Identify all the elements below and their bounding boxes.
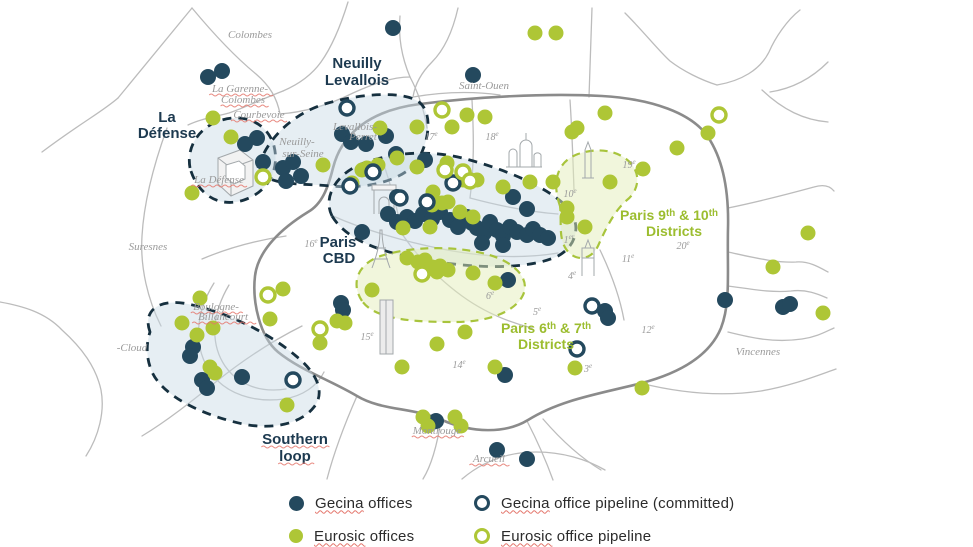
legend-item-gecina-offices: Gecina offices [289, 494, 413, 512]
eurosic-office-dot [445, 120, 460, 135]
eurosic-pipeline-ring [313, 322, 327, 336]
submarket-area-label: Neuilly [332, 55, 382, 72]
place-label: Billancourt [198, 311, 249, 323]
eurosic-office-dot [603, 175, 618, 190]
eurosic-office-dot [560, 201, 575, 216]
eurosic-office-dot [766, 260, 781, 275]
eurosic-office-dot [478, 110, 493, 125]
eurosic-office-dot [635, 381, 650, 396]
submarket-area-label: loop [279, 448, 311, 465]
place-label: Colombes [228, 29, 272, 41]
gecina-pipeline-ring [286, 373, 300, 387]
eurosic-office-dot [185, 186, 200, 201]
eurosic-office-dot [410, 160, 425, 175]
eurosic-office-dot [466, 266, 481, 281]
eurosic-office-dot [313, 336, 328, 351]
legend: Gecina offices Eurosic offices Gecina of… [0, 485, 973, 547]
legend-label: Gecina office pipeline (committed) [501, 495, 734, 512]
eurosic-office-dot [430, 337, 445, 352]
gecina-office-dot [495, 237, 511, 253]
eurosic-office-dot [453, 205, 468, 220]
gecina-office-marker [289, 496, 304, 511]
submarket-area-label: Levallois [325, 72, 389, 89]
submarket-area-label: Southern [262, 431, 328, 448]
eurosic-pipeline-ring [712, 108, 726, 122]
gecina-office-dot [782, 296, 798, 312]
place-label: La Défense [193, 174, 244, 186]
eurosic-pipeline-ring [415, 267, 429, 281]
place-label: Montrouge [412, 425, 462, 437]
gecina-office-dot [354, 224, 370, 240]
gecina-office-dot [540, 230, 556, 246]
gecina-office-dot [519, 451, 535, 467]
eurosic-office-dot [546, 175, 561, 190]
gecina-office-dot [249, 130, 265, 146]
eurosic-office-dot [523, 175, 538, 190]
gecina-office-dot [255, 154, 271, 170]
eurosic-office-dot [365, 283, 380, 298]
legend-label: Eurosic office pipeline [501, 528, 651, 545]
gecina-pipeline-ring [343, 179, 357, 193]
eurosic-office-dot [670, 141, 685, 156]
place-label: Saint-Ouen [459, 80, 510, 92]
gecina-office-dot [234, 369, 250, 385]
gecina-office-dot [293, 168, 309, 184]
submarket-area-label: La [158, 109, 176, 126]
legend-item-eurosic-offices: Eurosic offices [289, 527, 414, 545]
eurosic-pipeline-ring [261, 288, 275, 302]
gecina-pipeline-ring [585, 299, 599, 313]
eurosic-pipeline-ring [435, 103, 449, 117]
eurosic-pipeline-marker [474, 528, 490, 544]
gecina-office-dot [199, 380, 215, 396]
montparnasse-tower-illustration [380, 300, 393, 354]
submarket-area-label: CBD [323, 250, 356, 267]
eurosic-office-dot [410, 120, 425, 135]
eurosic-office-dot [565, 125, 580, 140]
eurosic-pipeline-ring [463, 174, 477, 188]
gecina-pipeline-ring [420, 195, 434, 209]
place-label: -Cloud [117, 342, 148, 354]
gecina-pipeline-ring [366, 165, 380, 179]
gecina-office-dot [474, 235, 490, 251]
eurosic-office-dot [208, 366, 223, 381]
gecina-office-dot [717, 292, 733, 308]
place-label: Colombes [221, 94, 265, 106]
place-label: Arcueil [472, 453, 505, 465]
eurosic-office-dot [423, 220, 438, 235]
gecina-pipeline-marker [474, 495, 490, 511]
district-area-label: Districts [518, 336, 574, 352]
eurosic-office-dot [568, 361, 583, 376]
place-label: Perret [348, 131, 378, 143]
eurosic-office-dot [578, 220, 593, 235]
eurosic-office-marker [289, 529, 303, 543]
gecina-office-dot [182, 348, 198, 364]
place-label: sur-Seine [282, 148, 323, 160]
eurosic-office-dot [488, 360, 503, 375]
gecina-office-dot [519, 201, 535, 217]
eurosic-office-dot [801, 226, 816, 241]
paris-offices-map-figure: ColombesLa Garenne-ColombesCourbevoieNeu… [0, 0, 973, 547]
gecina-office-dot [500, 272, 516, 288]
eurosic-office-dot [466, 210, 481, 225]
eurosic-office-dot [496, 180, 511, 195]
eurosic-office-dot [460, 108, 475, 123]
legend-item-eurosic-pipeline: Eurosic office pipeline [474, 527, 651, 545]
gecina-office-dot [600, 310, 616, 326]
gecina-pipeline-ring [393, 191, 407, 205]
gecina-pipeline-ring [340, 101, 354, 115]
eurosic-office-dot [636, 162, 651, 177]
eurosic-office-dot [488, 276, 503, 291]
eurosic-office-dot [816, 306, 831, 321]
gecina-office-dot [278, 173, 294, 189]
eurosic-office-dot [598, 106, 613, 121]
map: ColombesLa Garenne-ColombesCourbevoieNeu… [0, 0, 973, 485]
gecina-office-dot [214, 63, 230, 79]
legend-item-gecina-pipeline: Gecina office pipeline (committed) [474, 494, 734, 512]
eurosic-office-dot [430, 265, 445, 280]
place-label: Vincennes [736, 346, 780, 358]
eurosic-office-dot [175, 316, 190, 331]
legend-label: Eurosic offices [314, 528, 414, 545]
district-area-label: Districts [646, 223, 702, 239]
eurosic-office-dot [701, 126, 716, 141]
eurosic-pipeline-ring [438, 163, 452, 177]
place-label: Neuilly- [278, 136, 315, 148]
eurosic-office-dot [263, 312, 278, 327]
eurosic-office-dot [190, 328, 205, 343]
gecina-office-dot [385, 20, 401, 36]
eurosic-office-dot [206, 111, 221, 126]
place-label: Courbevoie [233, 109, 284, 121]
eurosic-office-dot [338, 316, 353, 331]
eurosic-office-dot [280, 398, 295, 413]
submarket-area-label: Défense [138, 125, 196, 142]
place-label: Suresnes [129, 241, 168, 253]
eurosic-office-dot [224, 130, 239, 145]
submarket-area-label: Paris [320, 234, 357, 251]
eurosic-office-dot [395, 360, 410, 375]
legend-label: Gecina offices [315, 495, 413, 512]
eurosic-office-dot [458, 325, 473, 340]
eurosic-office-dot [276, 282, 291, 297]
eurosic-pipeline-ring [256, 170, 270, 184]
district-area-label: Paris 6th & 7th [501, 320, 591, 336]
eurosic-office-dot [549, 26, 564, 41]
eurosic-office-dot [390, 151, 405, 166]
eurosic-office-dot [528, 26, 543, 41]
eurosic-office-dot [396, 221, 411, 236]
